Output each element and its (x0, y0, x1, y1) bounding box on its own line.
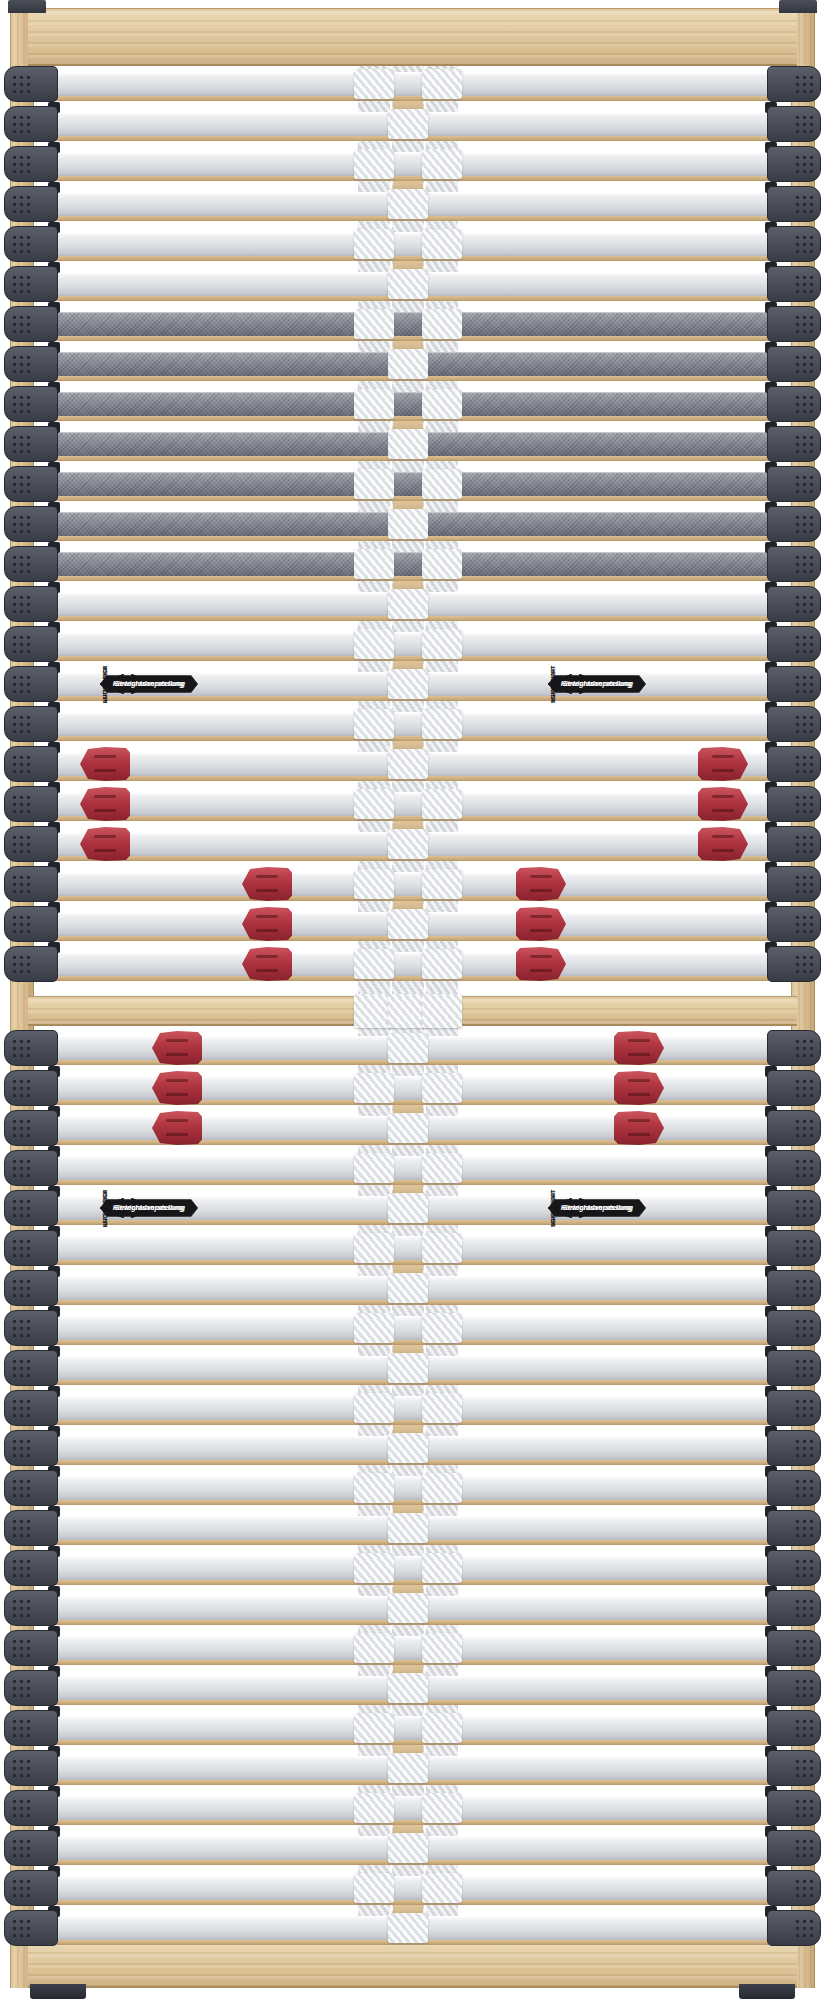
label-caption-right: SCHWER HART (548, 1198, 559, 1218)
corner-bracket-top-right (779, 0, 817, 13)
strap-over-slat (422, 1393, 462, 1423)
slat (38, 872, 787, 896)
label-caption-right: LEICHT WEICH (100, 674, 111, 694)
slider-emboss-line (94, 795, 116, 798)
firmness-slider (152, 1111, 202, 1145)
cap-grip-dots (11, 1238, 33, 1260)
firmness-slider (614, 1031, 664, 1065)
slider-emboss-line (628, 1079, 650, 1082)
slat-end-cap-right (767, 1790, 821, 1826)
cap-grip-dots (11, 834, 33, 856)
slat-end-cap-left (4, 1270, 58, 1306)
slat-end-cap-left (4, 146, 58, 182)
slider-emboss-line (628, 1133, 650, 1136)
slat-wood-edge (38, 496, 787, 501)
strap-over-slat (354, 709, 394, 739)
slider-emboss-line (530, 929, 552, 932)
cap-grip-dots (11, 1678, 33, 1700)
strap-over-slat (354, 1633, 394, 1663)
slider-emboss-line (166, 1039, 188, 1042)
slat-end-cap-left (4, 66, 58, 102)
label-caption-text: LEICHT WEICH (103, 666, 108, 702)
firm-zone-slat (38, 552, 787, 576)
firmness-slider (698, 787, 748, 821)
cap-grip-dots (11, 274, 33, 296)
slat-end-cap-left (4, 1310, 58, 1346)
slat-wood-edge (38, 1420, 787, 1425)
hardness-adjustment-label: WEICH LEICHTHärtegradverstellungGewichts… (548, 672, 744, 696)
strap-over-slat (422, 1793, 462, 1823)
strap-over-slat (388, 1833, 428, 1863)
slat (38, 1796, 787, 1820)
slat-end-cap-right (767, 1030, 821, 1066)
hardness-adjustment-label: HART SCHWERHärtegradverstellungGewichtsa… (100, 672, 296, 696)
cap-grip-dots (11, 1598, 33, 1620)
slider-emboss-line (256, 889, 278, 892)
strap-over-slat (354, 949, 394, 979)
firmness-slider (242, 867, 292, 901)
strap-over-slat (388, 669, 428, 699)
slat-end-cap-right (767, 1510, 821, 1546)
cap-grip-dots (11, 1878, 33, 1900)
strap-over-slat (354, 1073, 394, 1103)
strap-over-slat (422, 949, 462, 979)
slat-end-cap-left (4, 1030, 58, 1066)
firmness-slider (152, 1071, 202, 1105)
cap-grip-dots (794, 1478, 816, 1500)
slider-emboss-line (94, 835, 116, 838)
slat-wood-edge (38, 576, 787, 581)
cap-grip-dots (11, 1038, 33, 1060)
cap-grip-dots (11, 1558, 33, 1580)
slat-end-cap-right (767, 826, 821, 862)
strap-over-slat (388, 189, 428, 219)
slat-end-cap-right (767, 186, 821, 222)
slat-wood-edge (38, 976, 787, 981)
cap-grip-dots (794, 1398, 816, 1420)
slat (38, 952, 787, 976)
strap-over-slat (354, 1553, 394, 1583)
firmness-slider (80, 827, 130, 861)
cap-grip-dots (794, 1438, 816, 1460)
slat-end-cap-left (4, 386, 58, 422)
slider-emboss-line (166, 1133, 188, 1136)
slat-end-cap-right (767, 226, 821, 262)
strap-over-slat (354, 1793, 394, 1823)
slat (38, 1316, 787, 1340)
cap-grip-dots (794, 874, 816, 896)
strap-over-slat (354, 789, 394, 819)
slat-end-cap-right (767, 266, 821, 302)
slat (38, 712, 787, 736)
slat-end-cap-right (767, 1470, 821, 1506)
strap-over-slat (388, 269, 428, 299)
strap-over-slat (388, 1193, 428, 1223)
slat (38, 1556, 787, 1580)
strap-over-slat (388, 909, 428, 939)
cap-grip-dots (11, 754, 33, 776)
slat-end-cap-left (4, 106, 58, 142)
slat-end-cap-left (4, 826, 58, 862)
slat-end-cap-left (4, 546, 58, 582)
slat-end-cap-left (4, 1830, 58, 1866)
strap-over-slat (388, 1913, 428, 1943)
slat-wood-edge (38, 256, 787, 261)
slat-end-cap-left (4, 306, 58, 342)
cap-grip-dots (11, 1798, 33, 1820)
hardness-badge: HärtegradverstellungGewichtsanpassung (100, 675, 198, 693)
strap-over-slat (388, 1673, 428, 1703)
strap-over-slat (422, 1313, 462, 1343)
slat-end-cap-left (4, 746, 58, 782)
firmness-slider (516, 947, 566, 981)
cap-grip-dots (11, 1758, 33, 1780)
slat-end-cap-left (4, 1390, 58, 1426)
strap-over-slat (388, 1273, 428, 1303)
slat-end-cap-right (767, 666, 821, 702)
cap-grip-dots (11, 434, 33, 456)
hardness-adjustment-label: HART SCHWERHärtegradverstellungGewichtsa… (100, 1196, 296, 1220)
slat-end-cap-right (767, 1150, 821, 1186)
slat-end-cap-left (4, 1910, 58, 1946)
strap-over-slat (422, 1473, 462, 1503)
cap-grip-dots (794, 234, 816, 256)
cap-grip-dots (794, 634, 816, 656)
badge-line-2: Gewichtsanpassung (562, 680, 632, 688)
slat-end-cap-right (767, 626, 821, 662)
strap-over-slat (388, 1353, 428, 1383)
slat-end-cap-left (4, 1430, 58, 1466)
slat-wood-edge (38, 1580, 787, 1585)
badge-line-2: Gewichtsanpassung (114, 1204, 184, 1212)
slider-emboss-line (530, 969, 552, 972)
slat-wood-edge (38, 1900, 787, 1905)
cap-grip-dots (794, 594, 816, 616)
cap-grip-dots (794, 394, 816, 416)
strap-over-slat (422, 1153, 462, 1183)
slat-end-cap-right (767, 1830, 821, 1866)
slat-end-cap-right (767, 546, 821, 582)
foot-rail (28, 1940, 797, 1988)
strap-over-slat (354, 1873, 394, 1903)
cap-grip-dots (794, 1878, 816, 1900)
strap-over-slat (354, 389, 394, 419)
slat-end-cap-right (767, 1590, 821, 1626)
cap-grip-dots (11, 1918, 33, 1940)
slat-end-cap-right (767, 1310, 821, 1346)
firmness-slider (242, 907, 292, 941)
label-caption-text: LEICHT WEICH (103, 1190, 108, 1226)
cap-grip-dots (11, 1078, 33, 1100)
badge-line-2: Gewichtsanpassung (114, 680, 184, 688)
strap-over-slat (422, 309, 462, 339)
strap-over-slat (422, 389, 462, 419)
slat-end-cap-right (767, 1190, 821, 1226)
cap-grip-dots (794, 194, 816, 216)
firmness-slider (614, 1071, 664, 1105)
slider-emboss-line (712, 835, 734, 838)
strap-over-slat (388, 829, 428, 859)
slat-end-cap-left (4, 1230, 58, 1266)
slider-emboss-line (166, 1093, 188, 1096)
firmness-slider (80, 747, 130, 781)
strap-over-middle-rail (422, 994, 462, 1028)
slat-end-cap-right (767, 1350, 821, 1386)
cap-grip-dots (794, 1518, 816, 1540)
slat-end-cap-left (4, 906, 58, 942)
slat-end-cap-right (767, 346, 821, 382)
slat (38, 792, 787, 816)
cap-grip-dots (794, 834, 816, 856)
slat-end-cap-right (767, 1110, 821, 1146)
strap-over-slat (388, 1033, 428, 1063)
cap-grip-dots (794, 1238, 816, 1260)
slat-wood-edge (38, 1100, 787, 1105)
corner-bracket-top-left (8, 0, 46, 13)
slat-end-cap-right (767, 586, 821, 622)
strap-over-slat (422, 709, 462, 739)
label-caption-right: LEICHT WEICH (100, 1198, 111, 1218)
foot-left (30, 1984, 86, 1999)
slat-end-cap-right (767, 906, 821, 942)
slider-emboss-line (628, 1039, 650, 1042)
label-caption-text: SCHWER HART (551, 665, 556, 703)
bed-frame-photo: HART SCHWERHärtegradverstellungGewichtsa… (0, 0, 825, 2000)
cap-grip-dots (794, 114, 816, 136)
slat-end-cap-right (767, 1070, 821, 1106)
cap-grip-dots (794, 554, 816, 576)
slat-end-cap-left (4, 426, 58, 462)
slat (38, 1396, 787, 1420)
slider-emboss-line (712, 809, 734, 812)
slider-emboss-line (256, 915, 278, 918)
strap-over-slat (388, 1433, 428, 1463)
cap-grip-dots (11, 1438, 33, 1460)
slat-end-cap-left (4, 586, 58, 622)
slider-emboss-line (94, 809, 116, 812)
slat-end-cap-left (4, 266, 58, 302)
cap-grip-dots (11, 514, 33, 536)
slat-end-cap-left (4, 346, 58, 382)
slat (38, 72, 787, 96)
cap-grip-dots (11, 194, 33, 216)
cap-grip-dots (11, 314, 33, 336)
cap-grip-dots (794, 954, 816, 976)
cap-grip-dots (11, 674, 33, 696)
strap-over-slat (354, 69, 394, 99)
slat-wood-edge (38, 176, 787, 181)
slat-end-cap-left (4, 786, 58, 822)
slider-emboss-line (712, 849, 734, 852)
cap-grip-dots (11, 1838, 33, 1860)
cap-grip-dots (11, 714, 33, 736)
cap-grip-dots (794, 1198, 816, 1220)
head-rail (28, 8, 797, 66)
cap-grip-dots (11, 354, 33, 376)
slat-wood-edge (38, 896, 787, 901)
slat-end-cap-right (767, 1710, 821, 1746)
slat-wood-edge (38, 816, 787, 821)
slat-wood-edge (38, 736, 787, 741)
slat-end-cap-left (4, 1550, 58, 1586)
slat-wood-edge (38, 1340, 787, 1345)
slat-end-cap-left (4, 226, 58, 262)
slat-end-cap-left (4, 1590, 58, 1626)
slat-end-cap-left (4, 1190, 58, 1226)
cap-grip-dots (794, 754, 816, 776)
slider-emboss-line (712, 795, 734, 798)
slat-end-cap-right (767, 66, 821, 102)
strap-over-slat (354, 1153, 394, 1183)
slat-end-cap-right (767, 746, 821, 782)
slat-end-cap-right (767, 866, 821, 902)
slider-emboss-line (712, 755, 734, 758)
strap-over-slat (422, 629, 462, 659)
slat-wood-edge (38, 1260, 787, 1265)
cap-grip-dots (794, 1038, 816, 1060)
slat-end-cap-right (767, 306, 821, 342)
cap-grip-dots (794, 354, 816, 376)
slat-end-cap-left (4, 1630, 58, 1666)
slat-end-cap-right (767, 1670, 821, 1706)
cap-grip-dots (11, 914, 33, 936)
strap-over-slat (422, 1233, 462, 1263)
slat (38, 152, 787, 176)
slider-emboss-line (712, 769, 734, 772)
strap-over-slat (354, 149, 394, 179)
cap-grip-dots (11, 1278, 33, 1300)
cap-grip-dots (11, 874, 33, 896)
slat (38, 1876, 787, 1900)
slat-end-cap-right (767, 706, 821, 742)
firmness-slider (614, 1111, 664, 1145)
cap-grip-dots (794, 1598, 816, 1620)
strap-over-slat (354, 1473, 394, 1503)
strap-over-slat (354, 1713, 394, 1743)
slat-end-cap-left (4, 706, 58, 742)
slat-end-cap-right (767, 1550, 821, 1586)
slat-end-cap-left (4, 1110, 58, 1146)
slat-wood-edge (38, 336, 787, 341)
slat-end-cap-right (767, 466, 821, 502)
slat (38, 1636, 787, 1660)
cap-grip-dots (794, 434, 816, 456)
strap-over-slat (388, 509, 428, 539)
strap-over-slat (388, 589, 428, 619)
strap-over-slat (388, 1513, 428, 1543)
cap-grip-dots (11, 1518, 33, 1540)
slat-end-cap-right (767, 1750, 821, 1786)
cap-grip-dots (11, 1158, 33, 1180)
cap-grip-dots (11, 1718, 33, 1740)
strap-over-slat (354, 309, 394, 339)
firmness-slider (698, 747, 748, 781)
cap-grip-dots (794, 1558, 816, 1580)
slider-emboss-line (530, 955, 552, 958)
slat-wood-edge (38, 1180, 787, 1185)
slat (38, 1716, 787, 1740)
cap-grip-dots (11, 794, 33, 816)
slider-emboss-line (256, 969, 278, 972)
cap-grip-dots (11, 954, 33, 976)
strap-over-slat (354, 469, 394, 499)
slat-end-cap-right (767, 426, 821, 462)
slat-end-cap-left (4, 1150, 58, 1186)
firmness-slider (516, 907, 566, 941)
slat-end-cap-left (4, 1070, 58, 1106)
slat-wood-edge (38, 1660, 787, 1665)
slat-end-cap-right (767, 1390, 821, 1426)
cap-grip-dots (11, 1118, 33, 1140)
slat (38, 1076, 787, 1100)
cap-grip-dots (11, 234, 33, 256)
cap-grip-dots (794, 1718, 816, 1740)
slat (38, 232, 787, 256)
strap-over-slat (388, 1593, 428, 1623)
strap-over-slat (422, 1073, 462, 1103)
strap-over-slat (354, 1313, 394, 1343)
slat (38, 632, 787, 656)
cap-grip-dots (11, 1198, 33, 1220)
strap-over-slat (388, 1753, 428, 1783)
strap-over-slat (388, 109, 428, 139)
cap-grip-dots (11, 74, 33, 96)
slider-emboss-line (94, 755, 116, 758)
strap-over-slat (388, 429, 428, 459)
strap-over-slat (354, 1393, 394, 1423)
cap-grip-dots (11, 1638, 33, 1660)
cap-grip-dots (11, 634, 33, 656)
slat-end-cap-right (767, 106, 821, 142)
cap-grip-dots (11, 114, 33, 136)
slider-emboss-line (94, 769, 116, 772)
strap-over-slat (422, 469, 462, 499)
cap-grip-dots (794, 1358, 816, 1380)
slat-end-cap-left (4, 186, 58, 222)
slat-end-cap-left (4, 946, 58, 982)
cap-grip-dots (794, 1838, 816, 1860)
cap-grip-dots (794, 1758, 816, 1780)
slider-emboss-line (628, 1119, 650, 1122)
firmness-slider (516, 867, 566, 901)
slat-end-cap-right (767, 1430, 821, 1466)
cap-grip-dots (794, 914, 816, 936)
slat-end-cap-right (767, 386, 821, 422)
cap-grip-dots (11, 394, 33, 416)
cap-grip-dots (11, 1478, 33, 1500)
slat-end-cap-left (4, 1870, 58, 1906)
cap-grip-dots (794, 1158, 816, 1180)
slat-wood-edge (38, 1820, 787, 1825)
cap-grip-dots (11, 594, 33, 616)
slat-end-cap-left (4, 1470, 58, 1506)
cap-grip-dots (794, 1798, 816, 1820)
cap-grip-dots (11, 1398, 33, 1420)
strap-over-slat (422, 1633, 462, 1663)
cap-grip-dots (794, 314, 816, 336)
hardness-adjustment-label: WEICH LEICHTHärtegradverstellungGewichts… (548, 1196, 744, 1220)
strap-over-slat (354, 1233, 394, 1263)
slat-end-cap-right (767, 146, 821, 182)
slider-emboss-line (166, 1119, 188, 1122)
slat-wood-edge (38, 416, 787, 421)
slat-end-cap-left (4, 666, 58, 702)
firm-zone-slat (38, 472, 787, 496)
cap-grip-dots (794, 274, 816, 296)
firmness-slider (80, 787, 130, 821)
strap-over-slat (422, 69, 462, 99)
strap-over-slat (422, 149, 462, 179)
